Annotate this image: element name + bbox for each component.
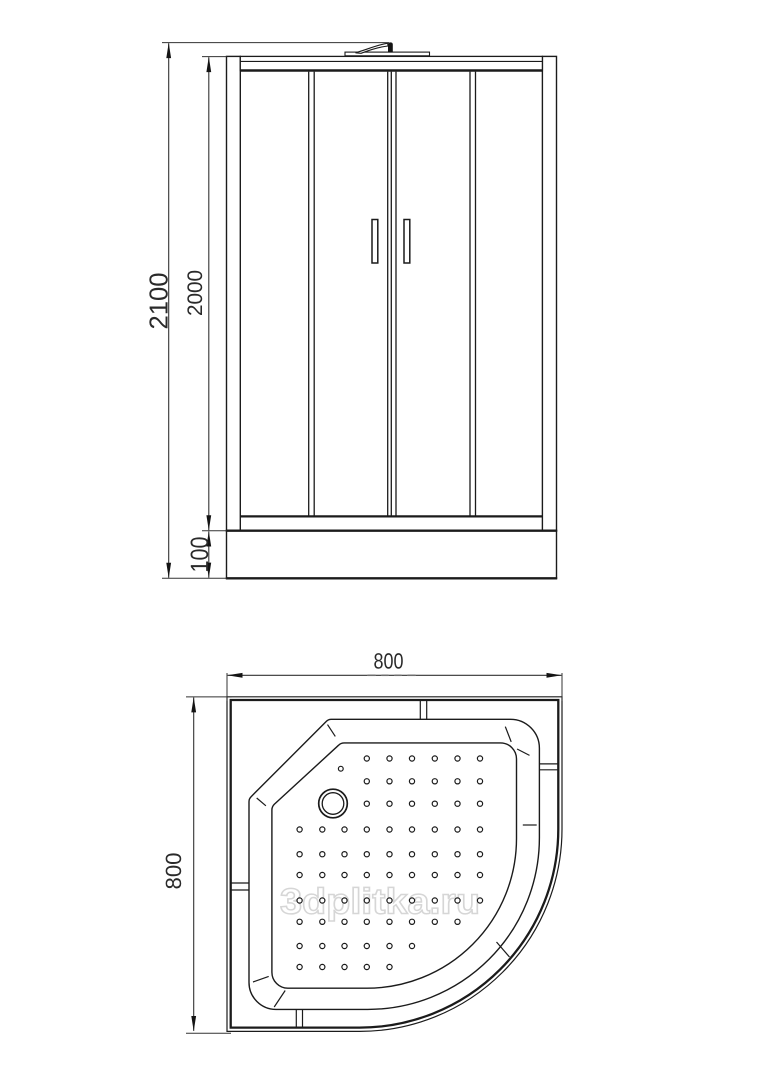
svg-text:3dplitka.ru: 3dplitka.ru xyxy=(280,881,480,922)
svg-text:800: 800 xyxy=(374,649,404,674)
svg-text:2000: 2000 xyxy=(184,270,207,316)
svg-text:800: 800 xyxy=(161,853,186,890)
svg-text:2100: 2100 xyxy=(144,273,174,330)
svg-text:100: 100 xyxy=(186,537,214,573)
